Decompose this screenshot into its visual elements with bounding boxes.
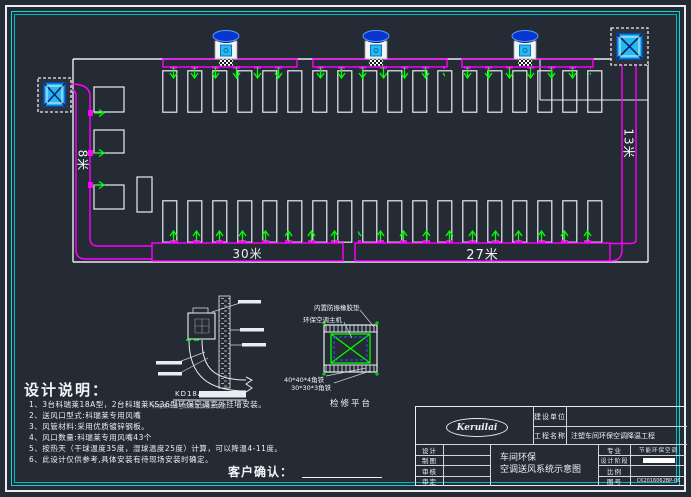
field-discipline-label: 专业 (599, 445, 631, 456)
stage-filled-bar (643, 458, 675, 463)
detail-wall-title: KD18A (175, 390, 204, 398)
detail-wall-mount (156, 296, 266, 400)
platform-title: 检修平台 (330, 397, 372, 409)
label-angle-30: 30*30*3角铁 (291, 382, 331, 392)
dim-left: 8米 (75, 144, 92, 178)
role-draft-value (444, 456, 491, 467)
drawing-title: 车间环保 空调送风系统示意图 (491, 445, 599, 486)
left-side-rooms (94, 87, 152, 212)
title-block: Keruilai 建设单位 工程名称 注塑车间环保空调降温工程 设计 制图 审核… (415, 406, 686, 486)
note-5: 5、按热天（干球温度35度，湿球温度25度）计算，可以降温4-11度。 (29, 443, 282, 454)
notes-list: 1、3台科瑞莱18A型，2台科瑞莱KS36型环保空调室外挂墙安装。 2、送风口型… (29, 399, 282, 465)
build-unit-label: 建设单位 (534, 407, 567, 427)
field-scale-value (631, 466, 686, 477)
note-2: 2、送风口型式:科瑞莱专用风嘴 (29, 410, 282, 421)
notes-title: 设计说明： (24, 379, 109, 400)
cad-sheet: 8米 13米 30米 27米 KD18A 科瑞莱环保空调侧墙安装示意图 内置防振… (0, 0, 691, 497)
field-number-label: 图号 (599, 477, 631, 487)
role-check-value (444, 466, 491, 477)
role-approve: 审定 (416, 477, 444, 487)
role-approve-value (444, 477, 491, 487)
label-host-unit: 环保空调主机 (303, 314, 342, 324)
company-logo: Keruilai (446, 418, 508, 437)
dim-bottom-right: 27米 (355, 244, 610, 263)
right-riser-duct (610, 65, 636, 261)
role-design-value (444, 445, 491, 456)
logo-cell: Keruilai (416, 407, 534, 445)
role-draft: 制图 (416, 456, 444, 467)
customer-confirm-line (302, 477, 382, 478)
corner-cooler-right (611, 28, 648, 65)
role-design: 设计 (416, 445, 444, 456)
drawing-title-line2: 空调送风系统示意图 (500, 464, 598, 476)
note-1: 1、3台科瑞莱18A型，2台科瑞莱KS36型环保空调室外挂墙安装。 (29, 399, 282, 410)
build-unit-value (567, 407, 687, 427)
customer-confirm-label: 客户确认： (228, 463, 293, 480)
field-discipline-value: 节能环保空调 (631, 445, 686, 456)
roof-unit-1 (213, 31, 239, 67)
dim-bottom-left: 30米 (152, 245, 343, 262)
label-rubber-pad: 内置防振橡胶垫 (314, 302, 360, 312)
roof-unit-3 (512, 31, 538, 67)
wall-cooler-left (38, 78, 71, 112)
note-4: 4、风口数量:科瑞莱专用风嘴43个 (29, 432, 282, 443)
dim-right: 13米 (621, 126, 638, 162)
field-stage-value (631, 456, 686, 467)
drawing-title-line1: 车间环保 (500, 452, 598, 464)
field-scale-label: 比例 (599, 466, 631, 477)
logo-text: Keruilai (457, 423, 498, 433)
role-check: 审核 (416, 466, 444, 477)
bottom-outlets (158, 229, 606, 243)
header-outlets (165, 66, 591, 79)
field-stage-label: 设计阶段 (599, 456, 631, 467)
project-value: 注塑车间环保空调降温工程 (567, 427, 687, 445)
field-number-value: CK2016062BP-06 (631, 477, 686, 487)
project-label: 工程名称 (534, 427, 567, 445)
roof-unit-2 (363, 31, 389, 67)
note-3: 3、风管材料:采用优质镀锌钢板。 (29, 421, 282, 432)
